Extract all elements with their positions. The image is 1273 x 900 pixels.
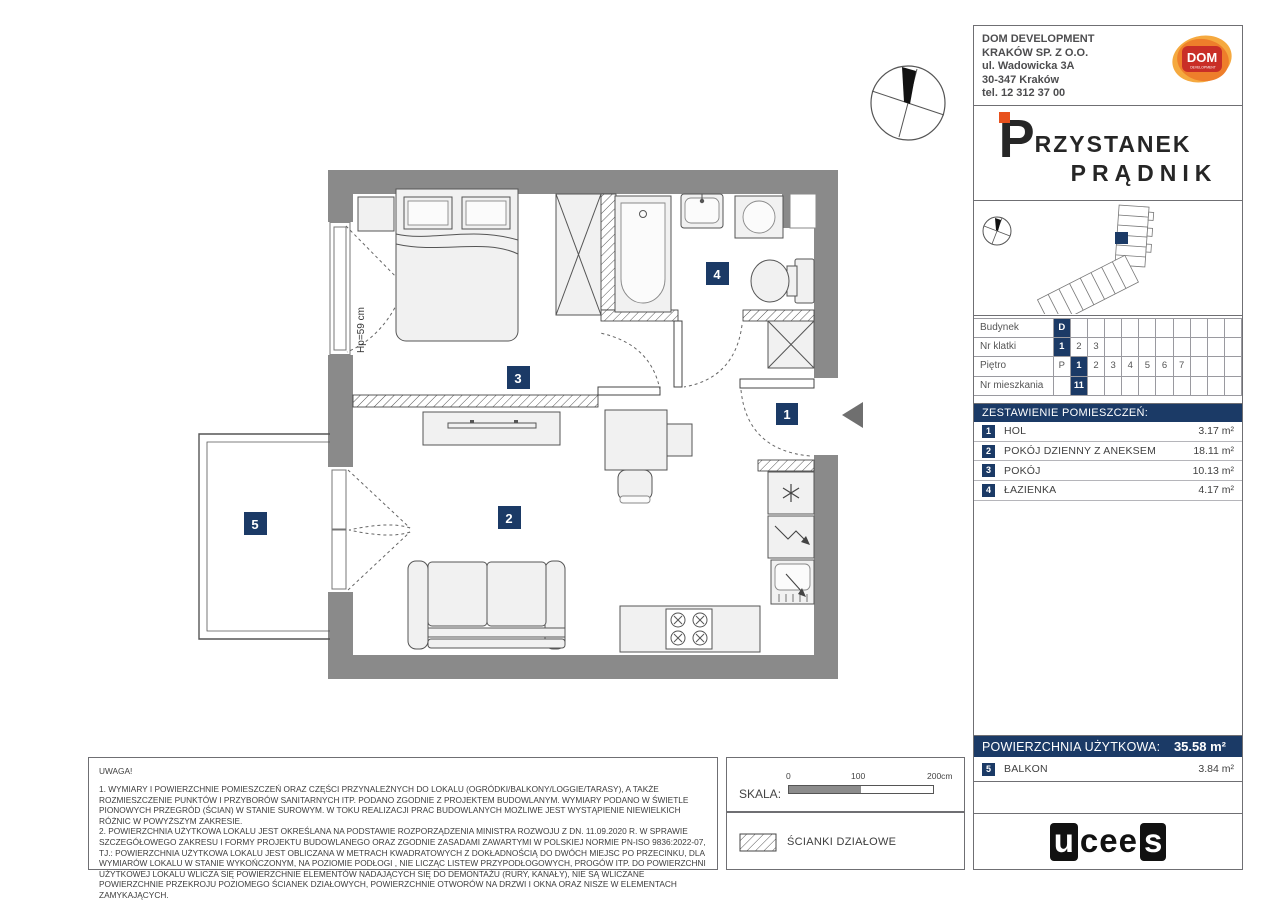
panel-spacer-2: [974, 782, 1242, 814]
rooms-table-title: ZESTAWIENIE POMIESZCZEŃ:: [974, 404, 1242, 422]
unit-table-cell: [1208, 319, 1225, 337]
window-sill-label: Hp=59 cm: [356, 307, 367, 353]
brand-letter-first: u: [1050, 823, 1078, 861]
site-plan: [974, 201, 1242, 316]
stove: [666, 609, 712, 649]
unit-table-cell: [1225, 377, 1242, 396]
unit-location-marker: [1115, 232, 1128, 244]
scale-tick-0: 0: [786, 771, 791, 781]
notes-paragraph: 1. WYMIARY I POWIERZCHNIE POMIESZCZEŃ OR…: [99, 784, 707, 826]
unit-table-cell: [1174, 338, 1191, 357]
room-number-badge: 2: [982, 445, 995, 458]
unit-table-cell: 6: [1156, 357, 1173, 376]
svg-text:3: 3: [514, 371, 521, 386]
svg-text:DOM: DOM: [1187, 50, 1217, 65]
unit-table-cell: [1174, 319, 1191, 337]
nightstand: [358, 197, 394, 231]
unit-table-cell: [1122, 377, 1139, 396]
unit-table-row-label: Nr klatki: [974, 338, 1054, 357]
window: [330, 217, 405, 360]
unit-table-cell: [1156, 319, 1173, 337]
svg-text:2: 2: [505, 511, 512, 526]
unit-table-cell: [1208, 377, 1225, 396]
info-panel: DOM DEVELOPMENT KRAKÓW SP. Z O.O. ul. Wa…: [973, 25, 1243, 870]
wardrobe: [556, 194, 601, 315]
room-badge-1: 1: [776, 403, 798, 425]
brand-logo: ucees: [974, 814, 1242, 870]
rooms-table: ZESTAWIENIE POMIESZCZEŃ: 1HOL3.17 m²2POK…: [974, 404, 1242, 501]
project-name: RZYSTANEK: [1035, 131, 1192, 159]
room-badge-4: 4: [706, 262, 729, 285]
room-row: 1HOL3.17 m²: [974, 422, 1242, 442]
unit-table-cell: [1054, 377, 1071, 396]
room-number-badge: 4: [982, 484, 995, 497]
unit-table-row-label: Nr mieszkania: [974, 377, 1054, 396]
bathtub: [615, 196, 671, 312]
unit-table-cell: [1208, 357, 1225, 376]
unit-table-cell: 1: [1054, 338, 1071, 357]
partition-legend: ŚCIANKI DZIAŁOWE: [726, 812, 965, 870]
balcony-row: 5 BALKON 3.84 m²: [974, 757, 1242, 782]
unit-table-cell: [1139, 377, 1156, 396]
sink: [681, 194, 723, 228]
unit-table-cell: [1105, 338, 1122, 357]
brand-letters-mid: cee: [1079, 824, 1139, 860]
kitchen-sink: [771, 560, 814, 604]
brand-letter-last: s: [1140, 823, 1166, 861]
scale-tick-200: 200cm: [927, 771, 953, 781]
room-name: HOL: [1004, 425, 1026, 437]
usable-area-value: 35.58 m²: [1174, 739, 1242, 754]
room-area: 18.11 m²: [1193, 445, 1234, 457]
unit-table-cell: 3: [1088, 338, 1105, 357]
toilet: [751, 259, 814, 303]
project-logo: P RZYSTANEK PRĄDNIK: [974, 106, 1242, 201]
unit-table-cell: [1139, 338, 1156, 357]
sideboard: [423, 412, 560, 445]
unit-table-cell: [1071, 319, 1088, 337]
partition-legend-label: ŚCIANKI DZIAŁOWE: [787, 836, 896, 848]
notes-paragraph: 2. POWIERZCHNIA UŻYTKOWA LOKALU JEST OKR…: [99, 826, 707, 900]
partition-hatch-swatch: [739, 833, 777, 852]
unit-table-cell: 7: [1174, 357, 1191, 376]
scale-bar-graphic: [788, 785, 934, 794]
unit-table-cell: [1174, 377, 1191, 396]
building-outline: [1037, 205, 1154, 314]
room-name: ŁAZIENKA: [1004, 484, 1056, 496]
unit-table-cell: [1156, 377, 1173, 396]
svg-text:1: 1: [783, 407, 790, 422]
notes-title: UWAGA!: [99, 766, 707, 776]
room-area: 4.17 m²: [1198, 484, 1234, 496]
balcony-outline: [199, 434, 330, 639]
unit-table-cell: P: [1054, 357, 1071, 376]
unit-table-cell: 4: [1122, 357, 1139, 376]
unit-table-cell: [1122, 319, 1139, 337]
room-name: POKÓJ: [1004, 465, 1041, 477]
unit-table-cell: 11: [1071, 377, 1088, 396]
unit-table-cell: [1225, 357, 1242, 376]
unit-table-cell: [1208, 338, 1225, 357]
room-row: 4ŁAZIENKA4.17 m²: [974, 481, 1242, 501]
svg-text:4: 4: [713, 267, 721, 282]
balcony-number-badge: 5: [982, 763, 995, 776]
dom-development-logo: DOM DEVELOPMENT: [1170, 32, 1234, 88]
company-phone: tel. 12 312 37 00: [982, 87, 1234, 101]
room-badge-5: 5: [244, 512, 267, 535]
room-number-badge: 1: [982, 425, 995, 438]
unit-table-row-label: Budynek: [974, 319, 1054, 337]
room-row: 2POKÓJ DZIENNY Z ANEKSEM18.11 m²: [974, 442, 1242, 462]
room-badge-3: 3: [507, 366, 530, 389]
fridge: [768, 472, 814, 514]
shaft: [768, 321, 814, 368]
unit-table-cell: [1225, 338, 1242, 357]
room-row: 3POKÓJ10.13 m²: [974, 461, 1242, 481]
company-block: DOM DEVELOPMENT KRAKÓW SP. Z O.O. ul. Wa…: [974, 26, 1242, 106]
dishwasher: [768, 516, 814, 558]
washing-machine: [735, 196, 783, 238]
orange-square-icon: [999, 112, 1010, 123]
unit-table-cell: [1191, 319, 1208, 337]
unit-table-cell: [1191, 357, 1208, 376]
bed: [396, 189, 518, 341]
summary-bar: POWIERZCHNIA UŻYTKOWA: 35.58 m²: [974, 736, 1242, 757]
room-area: 10.13 m²: [1193, 465, 1234, 477]
unit-table-cell: D: [1054, 319, 1071, 337]
svg-text:5: 5: [251, 517, 258, 532]
unit-table-row: BudynekD: [974, 318, 1242, 338]
room-area: 3.17 m²: [1198, 425, 1234, 437]
unit-table-cell: [1225, 319, 1242, 337]
unit-table-cell: 5: [1139, 357, 1156, 376]
unit-table: BudynekDNr klatki123PiętroP1234567Nr mie…: [974, 316, 1242, 404]
unit-table-cell: [1088, 377, 1105, 396]
balcony-area: 3.84 m²: [1198, 763, 1234, 775]
unit-table-cell: [1105, 319, 1122, 337]
unit-table-cell: [1122, 338, 1139, 357]
unit-table-cell: [1156, 338, 1173, 357]
svg-text:DEVELOPMENT: DEVELOPMENT: [1190, 66, 1216, 70]
bedroom-door: [598, 333, 660, 395]
north-arrow-icon: [871, 66, 945, 140]
room-name: POKÓJ DZIENNY Z ANEKSEM: [1004, 445, 1156, 457]
balcony-name: BALKON: [1004, 763, 1048, 775]
unit-table-row: Nr mieszkania11: [974, 377, 1242, 397]
sofa: [408, 561, 565, 649]
entrance-arrow-icon: [842, 402, 863, 428]
project-initial: P: [999, 119, 1035, 160]
unit-table-cell: 1: [1071, 357, 1088, 376]
unit-table-row-label: Piętro: [974, 357, 1054, 376]
wall-recess: [790, 194, 816, 228]
unit-table-cell: [1191, 377, 1208, 396]
unit-table-cell: [1088, 319, 1105, 337]
scale-tick-100: 100: [851, 771, 865, 781]
room-number-badge: 3: [982, 464, 995, 477]
balcony-door: [332, 470, 410, 590]
scale-bar: SKALA: 0 100 200cm: [726, 757, 965, 812]
unit-table-cell: 2: [1088, 357, 1105, 376]
panel-spacer: [974, 501, 1242, 736]
unit-table-cell: 3: [1105, 357, 1122, 376]
site-north-arrow-icon: [983, 217, 1011, 245]
notes: UWAGA! 1. WYMIARY I POWIERZCHNIE POMIESZ…: [88, 757, 718, 870]
desk: [605, 410, 692, 470]
unit-table-row: PiętroP1234567: [974, 357, 1242, 377]
chair: [618, 470, 652, 503]
room-badge-2: 2: [498, 506, 521, 529]
scale-label: SKALA:: [739, 787, 781, 801]
unit-table-cell: [1105, 377, 1122, 396]
unit-table-cell: [1191, 338, 1208, 357]
unit-table-row: Nr klatki123: [974, 338, 1242, 358]
unit-table-cell: [1139, 319, 1156, 337]
bathroom-door: [674, 321, 742, 387]
unit-table-cell: 2: [1071, 338, 1088, 357]
usable-area-label: POWIERZCHNIA UŻYTKOWA:: [974, 740, 1160, 754]
